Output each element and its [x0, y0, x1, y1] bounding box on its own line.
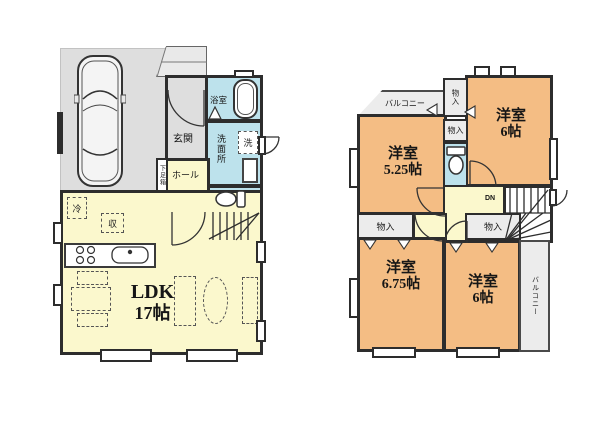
window-f2-right-upper [549, 138, 558, 180]
window-f2-top-2 [500, 66, 516, 77]
room-675 [357, 237, 445, 352]
room-675-name: 洋室 [362, 260, 440, 277]
tv-board-box [242, 277, 258, 324]
floorplan-page: 玄関 浴室 洗面所 洗 UP ホール 下足箱 LDK 17帖 [0, 0, 600, 447]
closet-top-label: 物入 [450, 89, 461, 106]
storage-box: 収 [101, 213, 124, 233]
oval-table [203, 277, 228, 324]
window-f1-bottom-left [100, 349, 152, 362]
hall-label: ホール [172, 168, 199, 181]
room-6-top-label: 洋室 6帖 [480, 108, 542, 140]
room-675-size: 6.75帖 [362, 277, 440, 293]
room-6-top-name: 洋室 [480, 108, 542, 125]
kitchen-counter [64, 243, 156, 268]
dining-chairs-top [77, 271, 108, 285]
stairs-dn-label: DN [485, 195, 495, 202]
window-f1-bottom-right [186, 349, 238, 362]
laundry-box: 洗 [238, 131, 258, 154]
window-f1-left-lower [53, 284, 63, 306]
closet-left: 物入 [357, 213, 414, 239]
shoebox-label: 下足箱 [158, 165, 167, 186]
bathroom-label: 浴室 [210, 94, 227, 106]
floor1-plan: 玄関 浴室 洗面所 洗 UP ホール 下足箱 LDK 17帖 [0, 0, 300, 447]
window-f1-right-lower [256, 320, 266, 342]
window-f2-left-lower [349, 278, 359, 318]
window-f2-bottom-right [456, 347, 500, 358]
toilet-room-f2 [443, 142, 468, 187]
closet-mid: 物入 [443, 119, 468, 142]
sofa-box [174, 276, 196, 326]
balcony-right: バルコニー [519, 240, 550, 352]
side-door-f1 [258, 136, 266, 155]
entrance-room [165, 75, 210, 163]
balcony-right-label: バルコニー [530, 276, 540, 316]
floor2-plan: バルコニー 洋室 5.25帖 洋室 6帖 物入 物入 DN 物入 [300, 0, 600, 447]
closet-mid-label: 物入 [448, 125, 464, 136]
room-6-top-size: 6帖 [480, 125, 542, 141]
room-6-bottom-label: 洋室 6帖 [452, 274, 514, 306]
window-f2-top-1 [474, 66, 490, 77]
room-6-bottom-size: 6帖 [452, 291, 514, 307]
room-525-size: 5.25帖 [362, 163, 444, 179]
closet-top: 物入 [443, 78, 468, 117]
washroom-label: 洗面所 [215, 134, 228, 184]
room-525-label: 洋室 5.25帖 [362, 146, 444, 178]
balcony-top-label: バルコニー [385, 98, 425, 109]
window-f1-right-upper [256, 241, 266, 263]
laundry-label: 洗 [243, 136, 252, 149]
entrance-label: 玄関 [173, 130, 193, 145]
window-f1-left-upper [53, 222, 63, 244]
door-f2-right [549, 189, 557, 206]
window-f1-bath-top [234, 70, 254, 78]
garage-wall-stub [57, 112, 63, 154]
vanity-sink-icon [242, 158, 258, 183]
car-icon [74, 53, 126, 189]
fridge-label: 冷 [72, 202, 81, 215]
room-6-bottom-name: 洋室 [452, 274, 514, 291]
bathtub-inner-line [237, 83, 254, 115]
closet-right-label: 物入 [484, 220, 502, 233]
shoebox: 下足箱 [156, 158, 168, 192]
closet-left-label: 物入 [376, 220, 394, 233]
dining-table [71, 287, 111, 311]
fridge-box: 冷 [67, 197, 87, 219]
storage-label: 収 [108, 217, 117, 230]
window-f2-bottom-left [372, 347, 416, 358]
window-f2-left-upper [349, 148, 359, 188]
room-675-label: 洋室 6.75帖 [362, 260, 440, 292]
dining-chairs-bottom [77, 313, 108, 327]
room-525-name: 洋室 [362, 146, 444, 163]
closet-right: 物入 [465, 213, 521, 240]
